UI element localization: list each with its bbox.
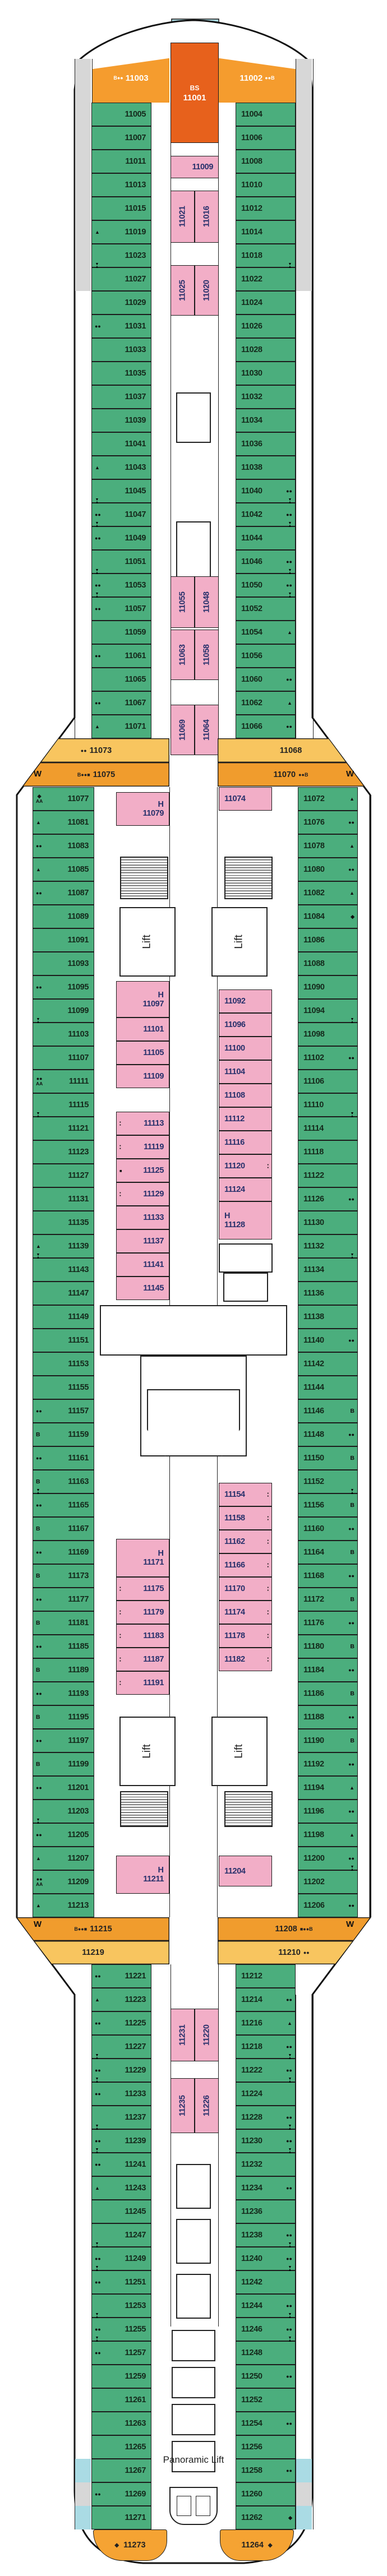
- cabin-number: 11180: [303, 1642, 324, 1651]
- cabin-number: 11043: [125, 463, 146, 472]
- cabin-11087: ●●11087: [33, 881, 94, 905]
- cabin-11261: 11261: [91, 2388, 151, 2412]
- cabin-11098: 11098▼▲: [298, 1023, 358, 1046]
- cabin-11145: 11145: [116, 1277, 169, 1300]
- cabin-11077: ◆AA11077: [33, 787, 94, 811]
- cabin-11246: 11246●●▼▲: [236, 2318, 296, 2341]
- panoramic-lift-label: Panoramic Lift: [149, 2454, 238, 2466]
- cabin-number: 11225: [125, 2019, 146, 2028]
- cabin-number: 11065: [125, 675, 146, 684]
- cabin-number: 11129: [143, 1190, 164, 1199]
- cabin-11209: ●●AA11209: [33, 1870, 94, 1894]
- cabin-11056: 11056: [236, 644, 296, 668]
- cabin-feature-symbol: ●●: [286, 2233, 292, 2238]
- cabin-number: 11233: [125, 2089, 146, 2098]
- cabin-11204: 11204: [219, 1856, 272, 1886]
- cabin-number: 11006: [241, 133, 262, 142]
- cabin-number: 11152: [303, 1477, 324, 1486]
- cabin-feature-symbol: ▲: [349, 1833, 354, 1838]
- connecting-cabins-icon: ▼▲: [94, 2149, 100, 2154]
- cabin-11119: ▪▪11119: [116, 1135, 169, 1159]
- cabin-number: 11134: [303, 1265, 324, 1274]
- cabin-number: 11096: [224, 1020, 246, 1029]
- cabin-11106: 11106: [298, 1070, 358, 1093]
- cabin-feature-symbol: ●●: [95, 2139, 101, 2144]
- cabin-feature-symbol: ●●: [286, 583, 292, 588]
- panoramic-lift-car: [177, 2496, 191, 2516]
- cabin-11271: 11271: [91, 2506, 151, 2529]
- stern-band-cyan: [75, 2506, 91, 2529]
- cabin-number: 11207: [67, 1854, 89, 1863]
- cabin-11016: 11016: [195, 191, 219, 243]
- cabin-number: 11145: [143, 1284, 164, 1293]
- cabin-number: 11060: [241, 675, 262, 684]
- connecting-cabins-icon: ▼▲: [35, 1490, 41, 1495]
- cabin-number: 11011: [125, 157, 146, 166]
- cabin-number: 11205: [67, 1830, 89, 1839]
- cabin-11240: 11240●●▼▲: [236, 2247, 296, 2270]
- cabin-feature-symbol: ●●: [286, 2186, 292, 2191]
- cabin-feature-symbol: ▲: [349, 1786, 354, 1791]
- cabin-feature-symbol: ▪▪: [267, 1163, 269, 1169]
- cabin-11123: 11123: [33, 1140, 94, 1164]
- cabin-number: 11244: [241, 2301, 262, 2310]
- cabin-number: 11107: [68, 1053, 89, 1062]
- cabin-11162: 11162▪▪: [219, 1530, 272, 1553]
- stern-stair-box: [172, 2404, 215, 2435]
- cabin-11190: 11190B: [298, 1729, 358, 1752]
- cabin-11187: ▪▪11187: [116, 1648, 169, 1671]
- cabin-number: 11187: [143, 1655, 164, 1664]
- cabin-number: 11119: [144, 1143, 164, 1151]
- cabin-feature-symbol: ●●: [348, 1715, 354, 1720]
- cabin-feature-symbol: ●●: [95, 2162, 101, 2167]
- cabin-feature-symbol: ●●: [95, 1974, 101, 1979]
- cabin-number: 11154: [224, 1490, 245, 1499]
- cabin-feature-symbol: ●●: [36, 1691, 42, 1696]
- cabin-11110: 11110: [298, 1093, 358, 1117]
- cabin-number: 11269: [125, 2490, 146, 2499]
- cabin-11034: 11034: [236, 409, 296, 432]
- cabin-feature-symbol: ●●: [286, 1997, 292, 2002]
- connecting-cabins-icon: ▼▲: [287, 499, 293, 504]
- connecting-cabins-icon: ▼▲: [94, 263, 100, 269]
- cabin-feature-symbol: ●●: [36, 1644, 42, 1649]
- cabin-11241: ●●11241▼▲: [91, 2153, 151, 2176]
- cabin-11040: 11040●●: [236, 479, 296, 503]
- hull-band-aft-left: [75, 1995, 93, 2529]
- atrium-core: [147, 1389, 240, 1456]
- cabin-11079: H11079: [116, 792, 169, 826]
- cabin-11193: ●●11193: [33, 1682, 94, 1705]
- cabin-11138: 11138: [298, 1305, 358, 1329]
- cabin-11013: 11013: [91, 173, 151, 197]
- cabin-11030: 11030: [236, 362, 296, 385]
- cabin-number: 11102: [303, 1053, 324, 1062]
- cabin-number: 11192: [303, 1760, 324, 1769]
- connecting-cabins-icon: ▼▲: [287, 2149, 293, 2154]
- cabin-feature-symbol: B●●■: [77, 772, 90, 778]
- cabin-number: 11228: [241, 2113, 262, 2122]
- stairwell: [176, 392, 211, 443]
- cabin-feature-symbol: ●●: [95, 701, 101, 706]
- forward-stairs-left: [120, 857, 168, 899]
- cabin-number: 11012: [241, 204, 262, 213]
- cabin-11184: 11184●●: [298, 1658, 358, 1682]
- cabin-11020: 11020: [195, 265, 219, 316]
- cabin-11015: 11015: [91, 197, 151, 220]
- cabin-11188: 11188●●: [298, 1705, 358, 1729]
- cabin-number: 11101: [143, 1025, 164, 1034]
- cabin-number: 11110: [303, 1100, 324, 1109]
- cabin-number: 11160: [303, 1524, 324, 1533]
- cabin-feature-symbol: ●●: [95, 2092, 101, 2097]
- cabin-number: 11138: [303, 1312, 324, 1321]
- cabin-number: 11255: [125, 2325, 146, 2334]
- cabin-feature-symbol: ●●: [95, 2351, 101, 2356]
- cabin-11086: 11086: [298, 928, 358, 952]
- cabin-11175: ▪▪11175: [116, 1577, 169, 1601]
- cabin-number: 11037: [125, 392, 146, 401]
- cabin-number: 11261: [125, 2395, 146, 2404]
- cabin-feature-symbol: ●●: [348, 1338, 354, 1343]
- interior-cabin-pair: 1102511020: [171, 265, 219, 316]
- cabin-number: 11010: [241, 181, 262, 189]
- connecting-cabins-icon: ▼▲: [94, 499, 100, 504]
- cabin-number: 11190: [303, 1736, 324, 1745]
- cabin-number: 11075: [93, 770, 116, 779]
- cabin-feature-symbol: ●●: [95, 654, 101, 659]
- cabin-feature-symbol: ▲: [95, 724, 100, 729]
- cabin-feature-symbol: ▪▪: [119, 1191, 121, 1197]
- cabin-number: 11150: [303, 1454, 324, 1463]
- cabin-11222: 11222●●▼▲: [236, 2059, 296, 2082]
- cabin-11255: ●●11255▼▲: [91, 2318, 151, 2341]
- cabin-11148: 11148●●: [298, 1423, 358, 1446]
- cabin-11092: 11092: [219, 989, 272, 1013]
- cabin-11269: ●●11269: [91, 2482, 151, 2506]
- cabin-number: 11149: [68, 1312, 89, 1321]
- cabin-11005: 11005: [91, 103, 151, 126]
- cabin-11236: 11236: [236, 2200, 296, 2223]
- cabin-number: 11210: [278, 1948, 301, 1957]
- cabin-11054: 11054▲: [236, 621, 296, 644]
- cabin-number: 11172: [303, 1595, 324, 1604]
- cabin-11104: 11104: [219, 1060, 272, 1084]
- cabin-11007: 11007: [91, 126, 151, 150]
- cabin-feature-symbol: ▪▪: [267, 1586, 269, 1592]
- cabin-number: 11085: [67, 865, 89, 874]
- cabin-11024: 11024: [236, 291, 296, 315]
- cabin-number: 11097: [142, 1000, 164, 1009]
- cabin-11059: 11059: [91, 621, 151, 644]
- cabin-number: 11067: [125, 699, 146, 707]
- cabin-11012: 11012: [236, 197, 296, 220]
- cabin-11051: 11051: [91, 550, 151, 574]
- cabin-11031: ●●11031: [91, 315, 151, 338]
- cabin-11196: 11196●●: [298, 1800, 358, 1823]
- cabin-number: 11078: [303, 841, 325, 850]
- cabin-11250: 11250●●: [236, 2365, 296, 2388]
- cabin-feature-symbol: ●●: [36, 1738, 42, 1743]
- cabin-feature-symbol: ▲: [95, 465, 100, 470]
- cabin-11027: 11027▼▲: [91, 267, 151, 291]
- cabin-11062: 11062▲: [236, 691, 296, 715]
- cabin-11200: 11200●●: [298, 1847, 358, 1870]
- connecting-cabins-icon: ▼▲: [94, 2243, 100, 2248]
- cabin-feature-symbol: ●●: [348, 1197, 354, 1202]
- cabin-feature-symbol: ●●: [95, 2068, 101, 2073]
- connecting-cabins-icon: ▼▲: [94, 2267, 100, 2272]
- cabin-feature-symbol: ●●: [286, 2327, 292, 2332]
- cabin-number: 11198: [303, 1830, 324, 1839]
- cabin-number: 11008: [241, 157, 262, 166]
- cabin-11259: 11259: [91, 2365, 151, 2388]
- cabin-number: 11263: [125, 2419, 146, 2428]
- cabin-11140: 11140●●: [298, 1329, 358, 1352]
- cabin-number: 11045: [125, 487, 146, 496]
- cabin-number: 11230: [241, 2136, 262, 2145]
- connecting-cabins-icon: ▼▲: [287, 263, 293, 269]
- cabin-number: 11109: [143, 1072, 164, 1081]
- cabin-11099: 11099: [33, 999, 94, 1023]
- cabin-number: 11087: [67, 889, 89, 898]
- cabin-feature-symbol: ▪▪: [119, 1657, 121, 1662]
- cabin-11202: 11202▼▲: [298, 1870, 358, 1894]
- forward-lift-right: Lift: [211, 907, 268, 977]
- cabin-number: 11256: [241, 2443, 262, 2452]
- cabin-number: 11098: [303, 1030, 325, 1039]
- cabin-11229: ●●11229▼▲: [91, 2059, 151, 2082]
- cabin-11254: 11254●●: [236, 2412, 296, 2435]
- cabin-number: 11144: [303, 1383, 324, 1392]
- cabin-number: 11130: [303, 1218, 324, 1227]
- cabin-number: 11049: [125, 534, 146, 543]
- cabin-number: 11116: [224, 1138, 245, 1147]
- cabin-feature-symbol: ▲: [95, 1997, 100, 2002]
- cabin-feature-symbol: ●●: [348, 1856, 354, 1861]
- cabin-feature-symbol: ●●: [95, 583, 101, 588]
- cabin-11153: 11153: [33, 1352, 94, 1376]
- cabin-number: 11141: [143, 1260, 164, 1269]
- cabin-number: 11176: [303, 1618, 324, 1627]
- cabin-11139: ▲11139: [33, 1234, 94, 1258]
- cabin-number: 11074: [224, 794, 246, 803]
- cabin-number: 11014: [241, 228, 262, 237]
- interior-cabin-pair: 1105511048: [171, 576, 219, 628]
- cabin-11109: 11109: [116, 1065, 169, 1088]
- stairwell: [176, 2219, 211, 2264]
- cabin-feature-symbol: ■: [119, 1169, 122, 1172]
- cabin-feature-symbol: ▲: [287, 701, 292, 706]
- cabin-number: 11135: [68, 1218, 89, 1227]
- cabin-11192: 11192●●: [298, 1752, 358, 1776]
- cabin-number: 11211: [143, 1875, 164, 1884]
- cabin-11180: 11180B: [298, 1635, 358, 1658]
- cabin-11135: 11135: [33, 1211, 94, 1234]
- accessible-cabin-marker: H: [158, 1866, 164, 1875]
- cabin-number: 11105: [143, 1048, 164, 1057]
- cabin-number: 11115: [68, 1100, 89, 1109]
- cabin-number: 11103: [68, 1030, 89, 1039]
- cabin-number: 11195: [68, 1713, 89, 1722]
- hull-band-gray-right: [296, 59, 312, 291]
- connecting-cabins-icon: ▼▲: [94, 2055, 100, 2060]
- cabin-feature-symbol: ●●: [36, 1550, 42, 1555]
- cabin-number: 11133: [143, 1213, 164, 1222]
- cabin-11131: 11131: [33, 1187, 94, 1211]
- cabin-11108: 11108: [219, 1084, 272, 1107]
- cabin-feature-symbol: ●●: [286, 724, 292, 729]
- cabin-11125: ■11125: [116, 1159, 169, 1182]
- wing-marker: W: [34, 1920, 42, 1929]
- cabin-feature-symbol: ●●: [286, 2115, 292, 2120]
- cabin-number: 11035: [125, 369, 146, 378]
- cabin-11025: 11025: [171, 265, 195, 316]
- cabin-number: 11148: [303, 1430, 324, 1439]
- connecting-cabins-icon: ▼▲: [94, 522, 100, 528]
- cabin-number: 11229: [125, 2066, 146, 2075]
- cabin-feature-symbol: ●●: [36, 1409, 42, 1414]
- cabin-number: 11166: [224, 1561, 245, 1570]
- cabin-11113: ▪▪11113: [116, 1112, 169, 1135]
- cabin-number: 11137: [143, 1237, 164, 1246]
- cabin-11160: 11160●●: [298, 1517, 358, 1541]
- cabin-number: 11262: [241, 2513, 262, 2522]
- cabin-11185: ●●11185: [33, 1635, 94, 1658]
- cabin-11136: 11136: [298, 1282, 358, 1305]
- cabin-feature-symbol: B: [350, 1738, 354, 1743]
- cabin-number: 11267: [125, 2466, 146, 2475]
- cabin-11206: 11206●●: [298, 1894, 358, 1917]
- connecting-cabins-icon: ▼▲: [94, 2125, 100, 2130]
- cabin-11038: 11038: [236, 456, 296, 479]
- midship-lift-block: [223, 1273, 268, 1302]
- cabin-number: 11249: [125, 2254, 146, 2263]
- cabin-11225: ●●11225: [91, 2011, 151, 2035]
- cabin-11189: B11189: [33, 1658, 94, 1682]
- cabin-11084: 11084◆: [298, 905, 358, 928]
- stern-band-cyan: [296, 2459, 312, 2482]
- cabin-11037: 11037: [91, 385, 151, 409]
- cabin-11118: 11118: [298, 1140, 358, 1164]
- cabin-feature-symbol: ●●: [95, 536, 101, 541]
- cabin-11080: 11080●●: [298, 858, 358, 881]
- cabin-number: 11246: [241, 2325, 262, 2334]
- cabin-feature-symbol: ▲: [287, 2021, 292, 2026]
- cabin-11262: 11262◆: [236, 2506, 296, 2529]
- cabin-number: 11224: [241, 2089, 262, 2098]
- cabin-11036: 11036: [236, 432, 296, 456]
- cabin-number: 11128: [224, 1220, 245, 1229]
- cabin-number: 11193: [68, 1689, 89, 1698]
- cabin-11257: ●●11257▼▲: [91, 2341, 151, 2365]
- cabin-feature-symbol: B: [36, 1527, 40, 1532]
- interior-cabin-pair: 1102111016: [171, 191, 219, 243]
- cabin-feature-symbol: ●●: [36, 891, 42, 896]
- cabin-number: 11185: [68, 1642, 89, 1651]
- cabin-11103: 11103▼▲: [33, 1023, 94, 1046]
- cabin-feature-symbol: ●●: [348, 1432, 354, 1437]
- cabin-number: 11243: [125, 2184, 146, 2193]
- cabin-11194: 11194▲: [298, 1776, 358, 1800]
- cabin-11252: 11252: [236, 2388, 296, 2412]
- cabin-11089: 11089: [33, 905, 94, 928]
- cabin-11029: 11029: [91, 291, 151, 315]
- cabin-11081: ▲11081: [33, 811, 94, 834]
- cabin-feature-symbol: ◆: [114, 2542, 119, 2549]
- cabin-11057: ●●11057▼▲: [91, 597, 151, 621]
- cabin-number: 11200: [303, 1854, 325, 1863]
- cabin-11245: 11245: [91, 2200, 151, 2223]
- cabin-number: 11059: [125, 628, 146, 637]
- cabin-number: 11169: [68, 1548, 89, 1557]
- cabin-number: 11147: [68, 1289, 89, 1298]
- cabin-11178: 11178▪▪: [219, 1624, 272, 1648]
- stern-band-cyan: [75, 2459, 91, 2482]
- cabin-11039: 11039: [91, 409, 151, 432]
- cabin-number: 11216: [241, 2019, 262, 2028]
- connecting-cabins-icon: ▼▲: [35, 1019, 41, 1024]
- cabin-11026: 11026: [236, 315, 296, 338]
- panoramic-lift-car: [196, 2496, 210, 2516]
- cabin-number: 11222: [241, 2066, 262, 2075]
- stern-stair-box: [172, 2367, 215, 2398]
- cabin-11181: B11181: [33, 1611, 94, 1635]
- cabin-11075: B●●■11075: [23, 762, 169, 787]
- cabin-11055: 11055: [171, 576, 195, 628]
- cabin-number: 11031: [125, 322, 146, 331]
- cabin-11237: 11237: [91, 2106, 151, 2129]
- cabin-number: 11009: [192, 163, 213, 172]
- cabin-11201: ●●11201: [33, 1776, 94, 1800]
- cabin-number: 11191: [143, 1678, 164, 1687]
- cabin-number: 11221: [125, 1972, 146, 1981]
- cabin-feature-symbol: B: [36, 1621, 40, 1626]
- cabin-11186: 11186B: [298, 1682, 358, 1705]
- cabin-number: 11032: [241, 392, 262, 401]
- cabin-number: 11083: [67, 841, 89, 850]
- cabin-11150: 11150B: [298, 1446, 358, 1470]
- cabin-11042: 11042●●▼▲: [236, 503, 296, 526]
- cabin-number: 11183: [143, 1631, 164, 1640]
- hull-band-wide-left: [17, 795, 34, 1917]
- suite-class-label: BS: [190, 84, 200, 93]
- cabin-number: 11079: [142, 809, 164, 818]
- cabin-number: 11241: [125, 2160, 146, 2169]
- cabin-11120: 11120▪▪: [219, 1154, 272, 1178]
- cabin-number: 11139: [68, 1242, 89, 1251]
- cabin-feature-symbol: ●●: [286, 2421, 292, 2426]
- cabin-feature-symbol: ▪▪: [119, 1586, 121, 1592]
- cabin-number: 11068: [280, 746, 302, 755]
- cabin-number: 11073: [90, 746, 112, 755]
- cabin-feature-symbol: ◆AA: [36, 794, 43, 804]
- cabin-feature-symbol: B: [36, 1574, 40, 1579]
- cabin-number: 11182: [224, 1655, 245, 1664]
- cabin-11112: 11112: [219, 1107, 272, 1131]
- cabin-number: 11072: [303, 794, 325, 803]
- accessible-cabin-marker: H: [158, 1549, 164, 1558]
- cabin-11116: 11116: [219, 1131, 272, 1154]
- cabin-11230: 11230●●▼▲: [236, 2129, 296, 2153]
- cabin-number: 11214: [241, 1995, 262, 2004]
- cabin-feature-symbol: B: [350, 1691, 354, 1696]
- cabin-11234: 11234●●: [236, 2176, 296, 2200]
- cabin-number: 11086: [303, 936, 325, 945]
- cabin-11182: 11182▪▪: [219, 1648, 272, 1671]
- cabin-11220: 11220: [195, 2009, 219, 2061]
